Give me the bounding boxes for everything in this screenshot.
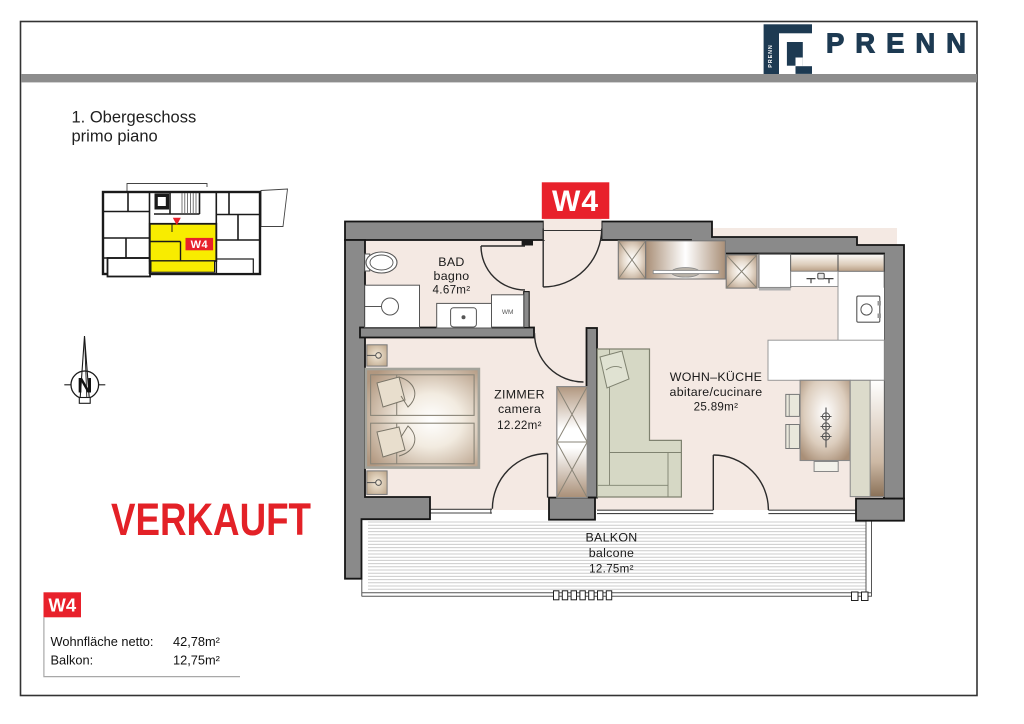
svg-text:PRENN: PRENN — [768, 44, 774, 67]
svg-text:12.22m²: 12.22m² — [497, 419, 542, 432]
svg-text:VERKAUFT: VERKAUFT — [111, 494, 311, 545]
svg-text:bagno: bagno — [434, 269, 470, 283]
svg-text:W4: W4 — [552, 185, 599, 218]
svg-text:42,78m²: 42,78m² — [173, 634, 221, 649]
svg-text:BALKON: BALKON — [585, 531, 637, 545]
svg-text:4.67m²: 4.67m² — [433, 284, 471, 297]
svg-text:BAD: BAD — [438, 255, 464, 269]
svg-text:N: N — [77, 375, 92, 398]
svg-text:ZIMMER: ZIMMER — [494, 388, 545, 402]
svg-text:12.75m²: 12.75m² — [589, 563, 634, 576]
svg-text:12,75m²: 12,75m² — [173, 653, 221, 668]
svg-text:Wohnfläche netto:: Wohnfläche netto: — [51, 634, 154, 649]
svg-text:WOHN–KÜCHE: WOHN–KÜCHE — [670, 370, 763, 384]
svg-text:Balkon:: Balkon: — [51, 653, 94, 668]
svg-text:abitare/cucinare: abitare/cucinare — [670, 385, 763, 399]
svg-text:camera: camera — [498, 402, 541, 416]
svg-text:balcone: balcone — [589, 546, 635, 560]
svg-text:WM: WM — [502, 309, 514, 316]
svg-text:W4: W4 — [191, 239, 209, 251]
svg-text:25.89m²: 25.89m² — [694, 401, 739, 414]
svg-text:primo piano: primo piano — [72, 128, 158, 146]
svg-text:1. Obergeschoss: 1. Obergeschoss — [72, 109, 197, 127]
svg-text:W4: W4 — [48, 595, 76, 616]
